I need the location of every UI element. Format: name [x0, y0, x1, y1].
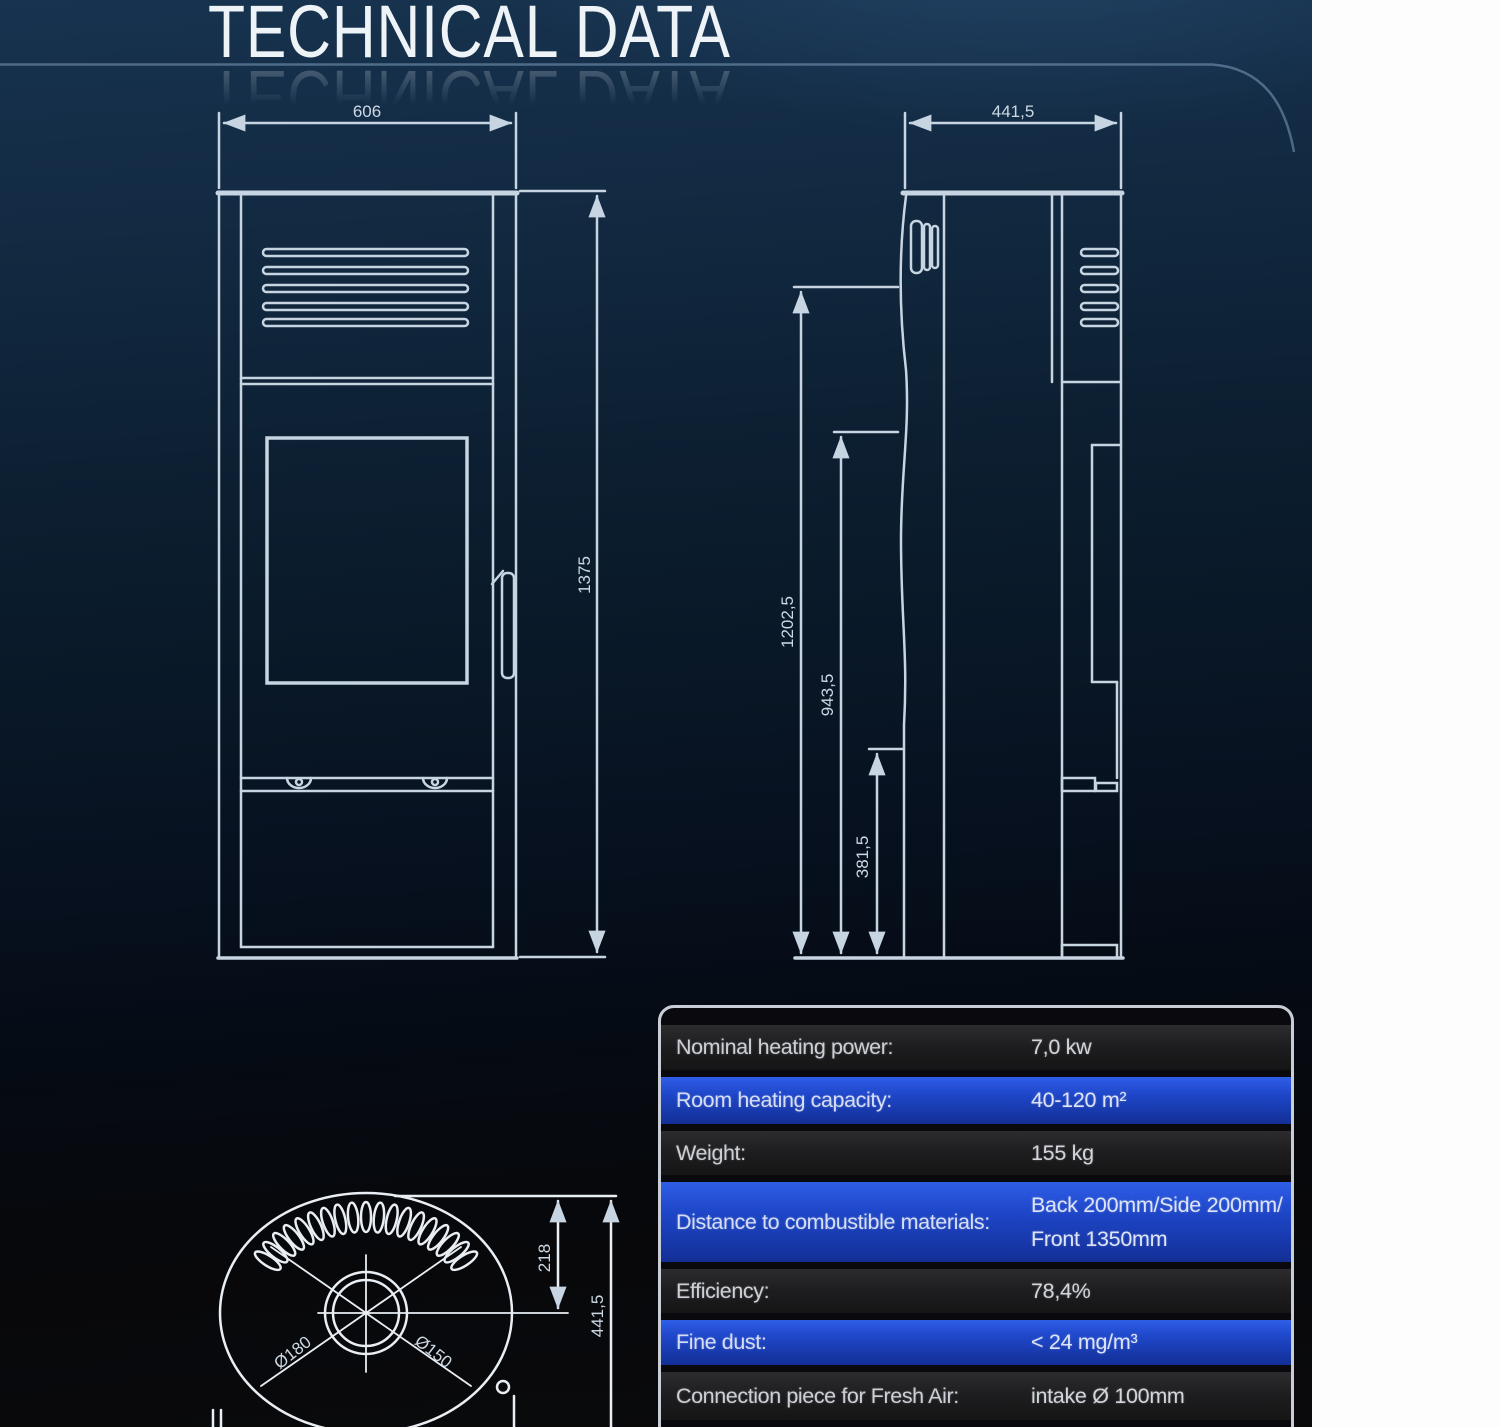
- door-window: [267, 438, 467, 683]
- spec-value: 78,4%: [1031, 1279, 1090, 1304]
- knob-detail: [497, 1381, 509, 1393]
- spec-label: Connection piece for Fresh Air:: [661, 1384, 1016, 1409]
- spec-value: 7,0 kw: [1031, 1035, 1091, 1060]
- table-row: Distance to combustible materials: Back …: [661, 1182, 1291, 1262]
- spec-table: Nominal heating power: 7,0 kw Room heati…: [658, 1005, 1294, 1427]
- door-handle: [502, 573, 514, 678]
- side-mid-dim: 943,5: [818, 674, 837, 717]
- side-depth-dim: 441,5: [992, 102, 1035, 121]
- top-view-drawing: [213, 1193, 616, 1427]
- spec-label: Nominal heating power:: [661, 1035, 1016, 1060]
- front-view-drawing: [218, 113, 605, 958]
- right-margin-strip: [1312, 0, 1500, 1427]
- spec-value: Back 200mm/Side 200mm/: [1031, 1193, 1283, 1218]
- side-upper-dim: 1202,5: [778, 596, 797, 648]
- spec-value-line2: Front 1350mm: [1031, 1227, 1283, 1252]
- spec-value: intake Ø 100mm: [1031, 1384, 1185, 1409]
- table-row: Fine dust: < 24 mg/m³: [661, 1320, 1291, 1365]
- top-depth-dim: 441,5: [588, 1295, 607, 1338]
- table-row: Connection piece for Fresh Air: intake Ø…: [661, 1372, 1291, 1420]
- spec-label: Efficiency:: [661, 1279, 1016, 1304]
- front-height-dim: 1375: [575, 556, 594, 594]
- flue-inner-dia-label: Ø150: [411, 1331, 455, 1372]
- spec-label: Room heating capacity:: [661, 1088, 1016, 1113]
- spec-value: < 24 mg/m³: [1031, 1330, 1137, 1355]
- front-width-dim: 606: [353, 102, 381, 121]
- page-background: TECHNICAL DATA TECHNICAL DATA: [0, 0, 1312, 1427]
- spec-value: 155 kg: [1031, 1141, 1094, 1166]
- spec-value: 40-120 m²: [1031, 1088, 1126, 1113]
- table-row: Room heating capacity: 40-120 m²: [661, 1077, 1291, 1124]
- spec-label: Fine dust:: [661, 1330, 1016, 1355]
- table-row: Weight: 155 kg: [661, 1131, 1291, 1175]
- table-row: Efficiency: 78,4%: [661, 1269, 1291, 1313]
- spec-label: Weight:: [661, 1141, 1016, 1166]
- title-underline-swoosh: [0, 65, 1294, 153]
- side-view-drawing: [794, 113, 1123, 958]
- side-lower-dim: 381,5: [853, 836, 872, 879]
- top-flue-offset-dim: 218: [535, 1244, 554, 1272]
- table-row: Nominal heating power: 7,0 kw: [661, 1025, 1291, 1070]
- spec-label: Distance to combustible materials:: [661, 1210, 1016, 1235]
